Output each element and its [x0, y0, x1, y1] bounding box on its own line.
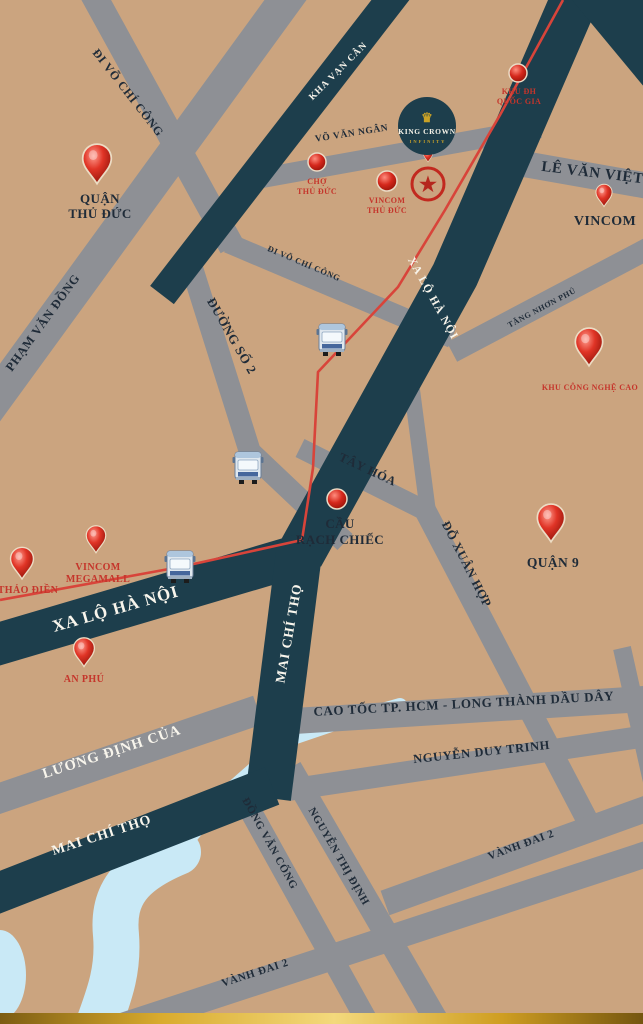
- poi-label: VINCOM: [75, 562, 120, 573]
- poi-label: QUẬN 9: [527, 555, 579, 570]
- poi-label: VINCOM: [574, 214, 636, 229]
- poi-label: THỦ ĐỨC: [68, 206, 131, 221]
- map-dot-icon: [308, 153, 326, 171]
- logo-name: KING CROWN: [398, 127, 455, 136]
- gold-footer-bar: [0, 1013, 643, 1024]
- poi-label: KHU CÔNG NGHỆ CAO: [542, 382, 638, 392]
- poi-label: QUỐC GIA: [497, 96, 541, 106]
- poi-label: KHU ĐH: [502, 87, 537, 96]
- poi-label: VINCOM: [369, 196, 406, 205]
- poi-label: THẢO ĐIỀN: [0, 583, 59, 596]
- bus-icon: [233, 452, 264, 484]
- poi-label: CẦU: [325, 516, 355, 531]
- poi-label: QUẬN: [80, 191, 120, 206]
- map-dot-icon: [377, 171, 397, 191]
- poi-label: MEGAMALL: [66, 574, 130, 585]
- poi-label: CHỢ: [307, 177, 327, 186]
- map-dot-icon: [327, 489, 347, 509]
- logo-subtitle: INFINITY: [410, 139, 447, 144]
- star-icon: ★: [419, 174, 437, 196]
- map-canvas: ĐI VÕ CHÍ CÔNG PHẠM VĂN ĐỒNG KHA VẠN CÂN…: [0, 0, 643, 1024]
- poi-label: THỦ ĐỨC: [367, 205, 407, 215]
- logo-circle: [398, 97, 456, 155]
- bus-icon: [317, 324, 348, 356]
- map-dot-icon: [509, 64, 527, 82]
- poi-label: AN PHÚ: [64, 673, 104, 685]
- crown-icon: ♛: [421, 110, 433, 125]
- poi-label: THỦ ĐỨC: [297, 186, 337, 196]
- project-logo: ♛ KING CROWN INFINITY: [398, 97, 456, 155]
- poi-label: RẠCH CHIẾC: [296, 532, 384, 547]
- bus-icon: [165, 551, 196, 583]
